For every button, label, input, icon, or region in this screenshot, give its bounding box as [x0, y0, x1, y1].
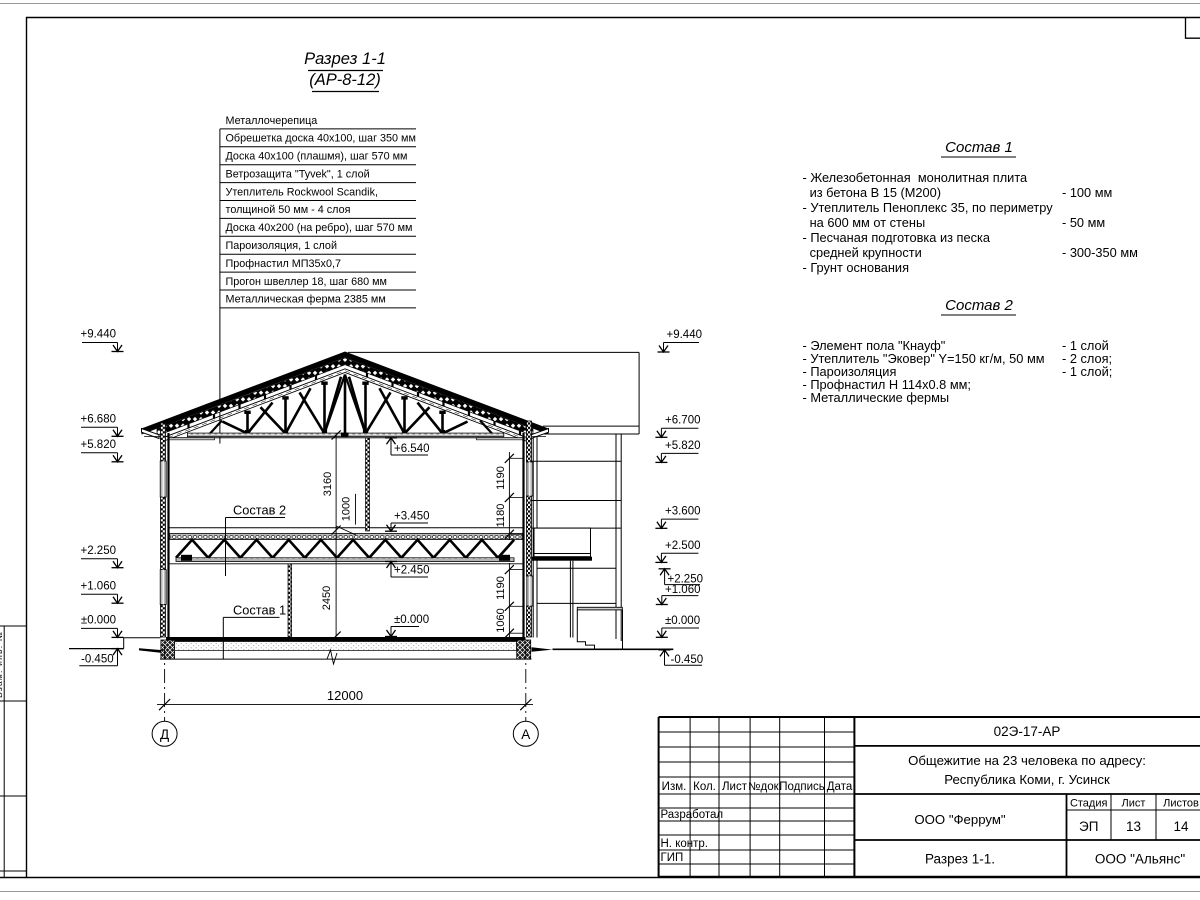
svg-text:Дата: Дата — [827, 781, 853, 793]
svg-text:Стадия: Стадия — [1070, 798, 1108, 810]
svg-text:на 600 мм от стены: на 600 мм от стены — [803, 215, 926, 230]
svg-text:Республика Коми, г. Усинск: Республика Коми, г. Усинск — [944, 772, 1110, 787]
svg-text:±0.000: ±0.000 — [665, 615, 700, 627]
svg-text:Прогон швеллер 18, шаг 680 мм: Прогон швеллер 18, шаг 680 мм — [226, 276, 387, 288]
svg-text:Взам. инв. №: Взам. инв. № — [0, 632, 4, 698]
svg-text:Разрез 1-1.: Разрез 1-1. — [925, 852, 995, 867]
svg-text:1060: 1060 — [495, 608, 507, 632]
svg-text:1180: 1180 — [495, 504, 507, 528]
svg-text:- Металлические фермы: - Металлические фермы — [803, 390, 950, 405]
svg-text:Общежитие на 23 человека по ад: Общежитие на 23 человека по адресу: — [908, 753, 1146, 768]
svg-text:±0.000: ±0.000 — [81, 615, 116, 627]
svg-text:Доска 40х100 (плашмя), шаг 570: Доска 40х100 (плашмя), шаг 570 мм — [226, 151, 408, 163]
svg-text:Утеплитель Rockwool Scandik,: Утеплитель Rockwool Scandik, — [226, 186, 378, 198]
svg-text:ГИП: ГИП — [661, 852, 684, 864]
svg-text:+1.060: +1.060 — [665, 584, 701, 596]
svg-text:Лист: Лист — [722, 781, 748, 793]
svg-text:12000: 12000 — [327, 688, 363, 703]
svg-text:13: 13 — [1126, 819, 1141, 834]
svg-text:Профнастил МП35х0,7: Профнастил МП35х0,7 — [226, 258, 341, 270]
svg-text:+2.500: +2.500 — [665, 540, 701, 552]
svg-text:А: А — [521, 727, 530, 742]
svg-text:Разработал: Разработал — [661, 809, 724, 821]
svg-text:Доска 40х200 (на ребро), шаг 5: Доска 40х200 (на ребро), шаг 570 мм — [226, 222, 413, 234]
svg-text:+6.680: +6.680 — [81, 414, 117, 426]
svg-text:+6.700: +6.700 — [665, 415, 701, 427]
svg-text:средней крупности: средней крупности — [803, 245, 922, 260]
svg-text:Кол.: Кол. — [693, 781, 716, 793]
svg-text:(АР-8-12): (АР-8-12) — [309, 71, 381, 89]
svg-text:- 100 мм: - 100 мм — [1062, 185, 1112, 200]
svg-text:Состав 1: Состав 1 — [233, 603, 286, 618]
svg-text:+6.540: +6.540 — [394, 443, 430, 455]
svg-text:±0.000: ±0.000 — [394, 614, 429, 626]
svg-text:+9.440: +9.440 — [81, 329, 117, 341]
svg-text:Металлочерепица: Металлочерепица — [226, 115, 318, 127]
svg-text:Металлическая ферма 2385 мм: Металлическая ферма 2385 мм — [226, 294, 386, 306]
svg-text:Подпись: Подпись — [779, 781, 825, 793]
svg-text:- Грунт основания: - Грунт основания — [803, 260, 910, 275]
svg-text:Состав 1: Состав 1 — [945, 139, 1013, 156]
svg-text:- 1 слой;: - 1 слой; — [1062, 364, 1112, 379]
svg-text:+2.250: +2.250 — [81, 545, 117, 557]
svg-text:- 50 мм: - 50 мм — [1062, 215, 1105, 230]
svg-text:Ветрозащита "Tyvek", 1 слой: Ветрозащита "Tyvek", 1 слой — [226, 168, 370, 180]
svg-text:Разрез 1-1: Разрез 1-1 — [304, 50, 386, 68]
svg-text:ЭП: ЭП — [1079, 819, 1098, 834]
svg-text:толщиной 50 мм - 4 слоя: толщиной 50 мм - 4 слоя — [226, 204, 351, 216]
svg-text:ООО "Феррум": ООО "Феррум" — [914, 812, 1006, 827]
svg-text:Состав 2: Состав 2 — [945, 297, 1013, 314]
svg-text:2450: 2450 — [321, 586, 333, 610]
svg-text:№док.: №док. — [748, 781, 782, 793]
svg-text:Изм.: Изм. — [662, 781, 687, 793]
svg-text:- Железобетонная монолитная п: - Железобетонная монолитная плита — [803, 170, 1029, 185]
svg-text:-0.450: -0.450 — [671, 654, 704, 666]
svg-text:1000: 1000 — [341, 497, 353, 521]
svg-text:- 300-350 мм: - 300-350 мм — [1062, 245, 1138, 260]
svg-text:+9.440: +9.440 — [667, 329, 703, 341]
svg-text:+3.450: +3.450 — [394, 511, 430, 523]
svg-text:Лист: Лист — [1122, 798, 1146, 810]
svg-text:- Утеплитель Пеноплекс 35, по: - Утеплитель Пеноплекс 35, по периметру — [803, 200, 1054, 215]
svg-text:- Песчаная подготовка из песка: - Песчаная подготовка из песка — [803, 230, 991, 245]
svg-text:+5.820: +5.820 — [665, 440, 701, 452]
svg-text:+3.600: +3.600 — [665, 506, 701, 518]
svg-text:3160: 3160 — [322, 472, 334, 496]
svg-text:+2.450: +2.450 — [394, 565, 430, 577]
svg-text:Состав 2: Состав 2 — [233, 503, 286, 518]
svg-text:+5.820: +5.820 — [81, 439, 117, 451]
svg-text:02Э-17-АР: 02Э-17-АР — [994, 724, 1061, 739]
svg-text:1190: 1190 — [495, 576, 507, 600]
svg-text:Н. контр.: Н. контр. — [661, 838, 708, 850]
svg-text:14: 14 — [1173, 819, 1189, 834]
svg-text:Листов: Листов — [1163, 798, 1199, 810]
svg-text:+1.060: +1.060 — [81, 581, 117, 593]
svg-text:-0.450: -0.450 — [81, 654, 114, 666]
svg-text:Д: Д — [160, 727, 169, 742]
svg-text:ООО "Альянс": ООО "Альянс" — [1095, 852, 1185, 867]
svg-text:Обрешетка доска 40х100, шаг 35: Обрешетка доска 40х100, шаг 350 мм — [226, 133, 416, 145]
svg-text:1190: 1190 — [495, 466, 507, 490]
svg-text:из бетона В 15 (М200): из бетона В 15 (М200) — [803, 185, 942, 200]
svg-text:Пароизоляция, 1 слой: Пароизоляция, 1 слой — [226, 240, 337, 252]
